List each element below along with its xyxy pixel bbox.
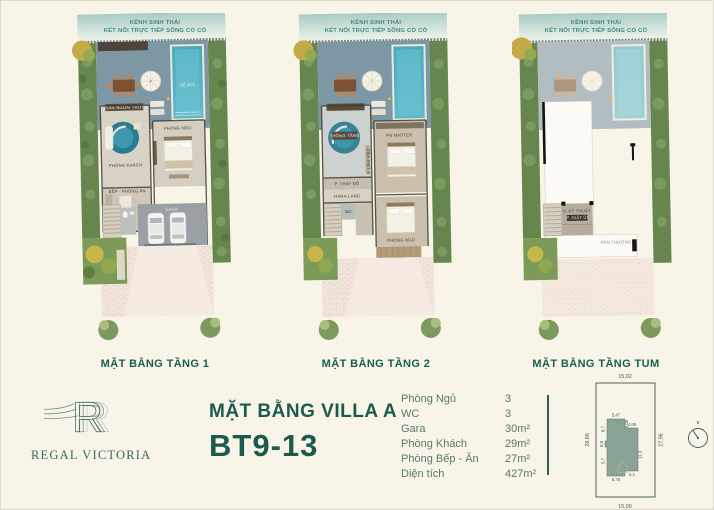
spec-value: 3 bbox=[505, 392, 543, 407]
dim-top: 15,02 bbox=[618, 374, 632, 380]
umbrella-icon bbox=[140, 71, 160, 91]
floor-plan-2-rendering: THÔNG TẦNG P. LÀM VIỆC P. THAY ĐỒ HÀNH L… bbox=[292, 13, 460, 345]
plan1-garage: GARA bbox=[137, 203, 207, 247]
plan2-render: THÔNG TẦNG P. LÀM VIỆC P. THAY ĐỒ HÀNH L… bbox=[293, 13, 453, 341]
floor-plan-tum-rendering: P. KỸ THUẬT P. GIẶT ỦI SÂN THƯỢNG KÊNH S… bbox=[512, 13, 680, 345]
plan1-render: BỂ BƠI SÂN NGOÀI TRỜI PHÒNG KHÁCH BẾP - … bbox=[71, 13, 232, 341]
villa-title: MẶT BẰNG VILLA A BT9-13 bbox=[209, 401, 397, 464]
room-label-master: PN MASTER bbox=[386, 132, 412, 138]
spec-row: Phòng Khách29m² bbox=[401, 437, 543, 452]
site-plan-diagram: 15,02 15,00 28,66 27,96 5,47 3,05 4,69 8… bbox=[577, 367, 714, 510]
room-label-wc: WC bbox=[345, 209, 352, 214]
compass-icon: B bbox=[689, 420, 708, 448]
plan1-header-line2: KẾT NỐI TRỰC TIẾP SÔNG CỔ CÒ bbox=[104, 26, 207, 34]
spec-label: Phòng Khách bbox=[401, 437, 505, 452]
umbrella-icon bbox=[362, 71, 382, 91]
dim-8-7: 8,7 bbox=[601, 425, 606, 432]
dim-right: 27,96 bbox=[659, 433, 665, 447]
dim-11-3: 11,3 bbox=[638, 450, 643, 459]
spec-label: Gara bbox=[401, 422, 505, 437]
room-label-tech: P. KỸ THUẬT bbox=[563, 208, 591, 214]
regal-victoria-logo: R R R bbox=[31, 385, 143, 441]
dim-bottom: 15,00 bbox=[618, 504, 632, 510]
brand-block: R R R REGAL VICTORIA bbox=[31, 385, 143, 463]
room-label-living: PHÒNG KHÁCH bbox=[109, 162, 142, 168]
compass-north-label: B bbox=[697, 420, 700, 425]
room-label-garage: GARA bbox=[165, 206, 178, 211]
room-label-dressing: P. THAY ĐỒ bbox=[335, 181, 360, 186]
plan1-header-line1: KÊNH SINH THÁI bbox=[130, 18, 181, 26]
plan1-caption: MẶT BẰNG TẦNG 1 bbox=[71, 358, 239, 370]
spec-label: Phòng Bếp - Ăn bbox=[401, 452, 505, 467]
villa-code: BT9-13 bbox=[209, 428, 397, 464]
spec-row: WC3 bbox=[401, 407, 543, 422]
spec-label: Diện tích bbox=[401, 467, 505, 482]
room-label-pool: BỂ BƠI bbox=[180, 82, 196, 87]
brand-name: REGAL VICTORIA bbox=[31, 448, 143, 463]
plan3-header-line2: KẾT NỐI TRỰC TIẾP SÔNG CỔ CÒ bbox=[545, 26, 648, 34]
room-label-bedroom: PHÒNG NGỦ bbox=[164, 125, 192, 131]
spec-value: 427m² bbox=[505, 467, 543, 482]
dim-5-76: 5,76 bbox=[612, 477, 621, 482]
plan2-header-line1: KÊNH SINH THÁI bbox=[351, 18, 402, 26]
car-icon bbox=[148, 213, 165, 244]
spec-table: Phòng Ngủ3 WC3 Gara30m² Phòng Khách29m² … bbox=[401, 392, 543, 482]
spec-row: Phòng Ngủ3 bbox=[401, 392, 543, 407]
building-footprint bbox=[605, 419, 638, 476]
room-label-bedroom2: PHÒNG NGỦ bbox=[387, 237, 415, 243]
plan3-header-line1: KÊNH SINH THÁI bbox=[571, 18, 622, 26]
room-label-study: P. LÀM VIỆC bbox=[366, 148, 372, 174]
spec-row: Phòng Bếp - Ăn27m² bbox=[401, 452, 543, 467]
brochure-page: BỂ BƠI SÂN NGOÀI TRỜI PHÒNG KHÁCH BẾP - … bbox=[0, 0, 714, 510]
logo-letter-echo: R bbox=[80, 394, 111, 441]
dim-5-7: 5,7 bbox=[601, 457, 606, 464]
room-label-terrace: SÂN THƯỢNG bbox=[601, 239, 632, 245]
spec-value: 29m² bbox=[505, 437, 543, 452]
floor-plan-card-1: BỂ BƠI SÂN NGOÀI TRỜI PHÒNG KHÁCH BẾP - … bbox=[71, 13, 239, 370]
villa-title-line1: MẶT BẰNG VILLA A bbox=[209, 401, 397, 423]
car-icon bbox=[170, 212, 187, 243]
dim-4-69: 4,69 bbox=[628, 422, 637, 427]
spec-value: 27m² bbox=[505, 452, 543, 467]
dim-5-1: 5,1 bbox=[629, 472, 636, 477]
floor-plan-1-rendering: BỂ BƠI SÂN NGOÀI TRỜI PHÒNG KHÁCH BẾP - … bbox=[71, 13, 239, 345]
plan2-caption: MẶT BẰNG TẦNG 2 bbox=[292, 358, 460, 370]
room-label-hallway: HÀNH LANG bbox=[334, 193, 360, 199]
spec-value: 3 bbox=[505, 407, 543, 422]
room-label-kitchen: BẾP - PHÒNG ĂN bbox=[109, 188, 146, 194]
dim-left: 28,66 bbox=[585, 433, 591, 447]
floor-plan-card-2: THÔNG TẦNG P. LÀM VIỆC P. THAY ĐỒ HÀNH L… bbox=[292, 13, 460, 370]
spec-label: Phòng Ngủ bbox=[401, 392, 505, 407]
dim-5-47: 5,47 bbox=[612, 413, 621, 418]
plan1-pool: BỂ BƠI bbox=[170, 44, 206, 121]
room-label-void: THÔNG TẦNG bbox=[330, 133, 360, 139]
spec-value: 30m² bbox=[505, 422, 543, 437]
spec-row: Gara30m² bbox=[401, 422, 543, 437]
spec-row: Diện tích427m² bbox=[401, 467, 543, 482]
plan3-render: P. KỸ THUẬT P. GIẶT ỦI SÂN THƯỢNG bbox=[512, 13, 673, 341]
dim-0-6: 0,6 bbox=[599, 440, 604, 447]
floor-plan-card-3: P. KỸ THUẬT P. GIẶT ỦI SÂN THƯỢNG KÊNH S… bbox=[512, 13, 680, 370]
room-label-laundry: P. GIẶT ỦI bbox=[566, 215, 588, 220]
plan2-header-line2: KẾT NỐI TRỰC TIẾP SÔNG CỔ CÒ bbox=[325, 26, 428, 34]
spec-label: WC bbox=[401, 407, 505, 422]
footer-divider bbox=[547, 395, 549, 475]
